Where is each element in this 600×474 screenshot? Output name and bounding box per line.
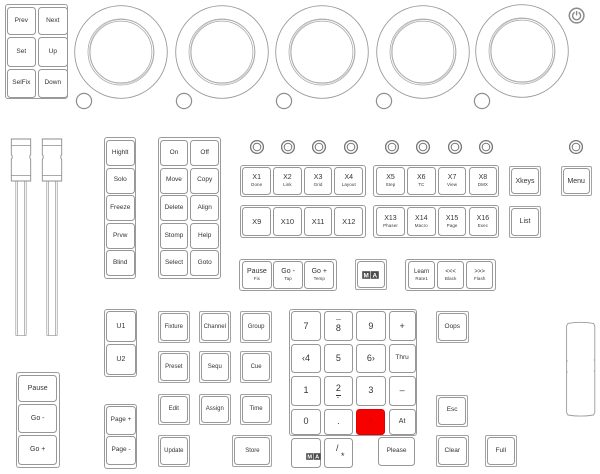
svg-text:M: M — [364, 272, 369, 279]
svg-text:M: M — [308, 455, 313, 460]
svg-text:A: A — [315, 455, 319, 460]
svg-text:A: A — [373, 272, 378, 279]
